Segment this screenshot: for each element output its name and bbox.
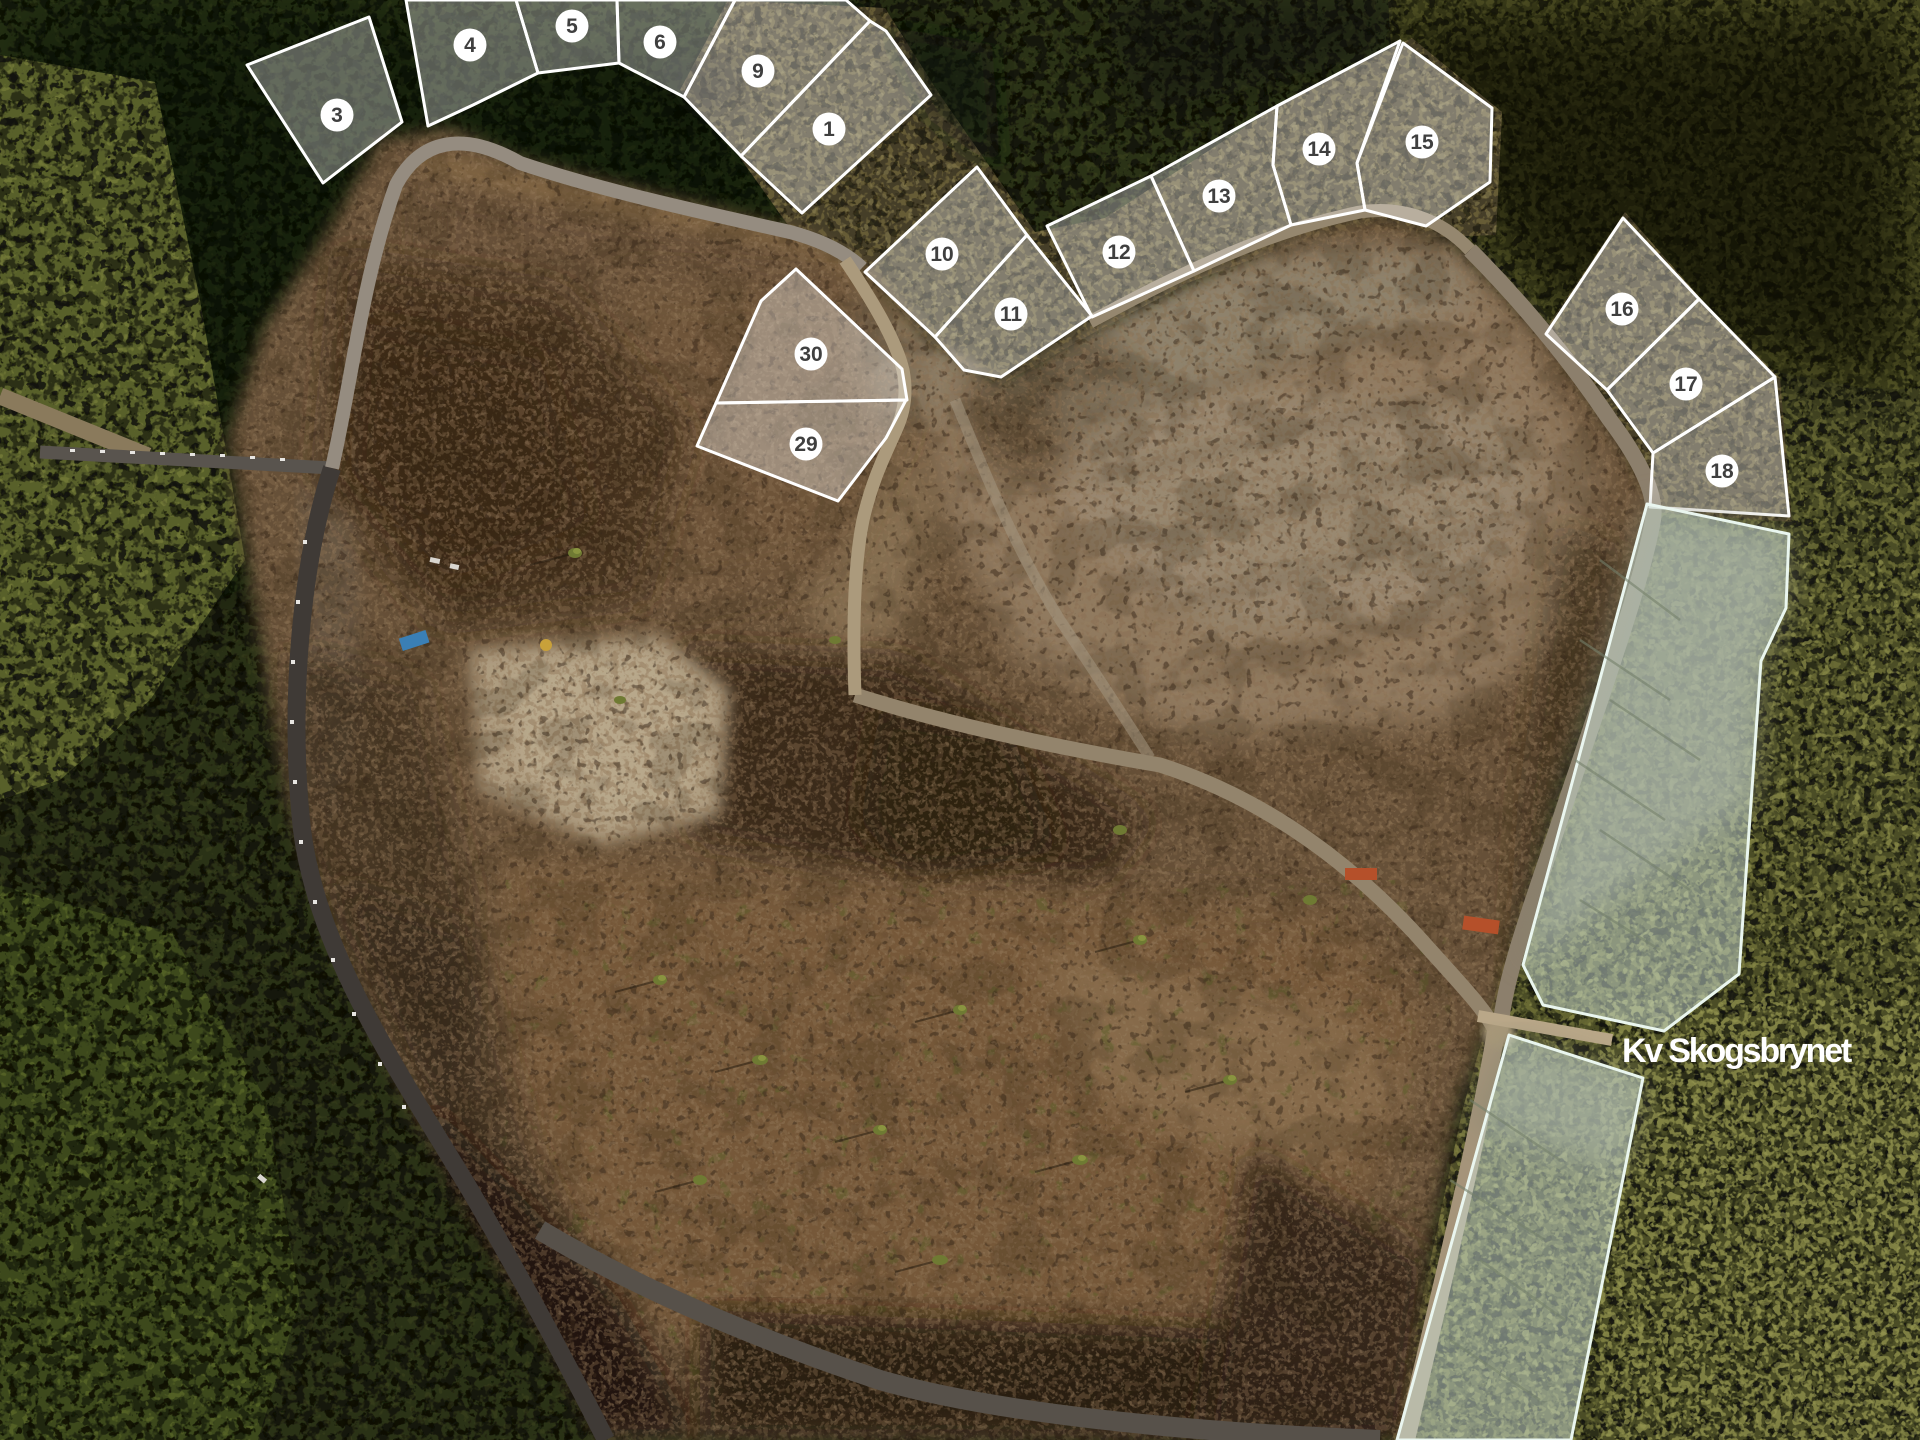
svg-text:9: 9 — [752, 60, 764, 83]
svg-text:16: 16 — [1610, 298, 1633, 321]
svg-text:29: 29 — [794, 433, 817, 456]
svg-text:17: 17 — [1674, 373, 1697, 396]
svg-text:5: 5 — [566, 15, 578, 38]
svg-text:6: 6 — [654, 31, 666, 54]
svg-text:11: 11 — [1000, 303, 1023, 326]
svg-text:15: 15 — [1410, 131, 1434, 154]
svg-text:1: 1 — [823, 118, 835, 141]
svg-text:4: 4 — [464, 34, 476, 57]
svg-text:13: 13 — [1207, 185, 1230, 208]
svg-text:3: 3 — [331, 104, 343, 127]
svg-text:Kv Skogsbrynet: Kv Skogsbrynet — [1622, 1032, 1852, 1070]
svg-text:10: 10 — [930, 243, 953, 266]
svg-text:14: 14 — [1307, 138, 1331, 161]
svg-text:12: 12 — [1107, 241, 1130, 264]
svg-text:18: 18 — [1710, 460, 1734, 483]
svg-text:30: 30 — [799, 343, 822, 366]
